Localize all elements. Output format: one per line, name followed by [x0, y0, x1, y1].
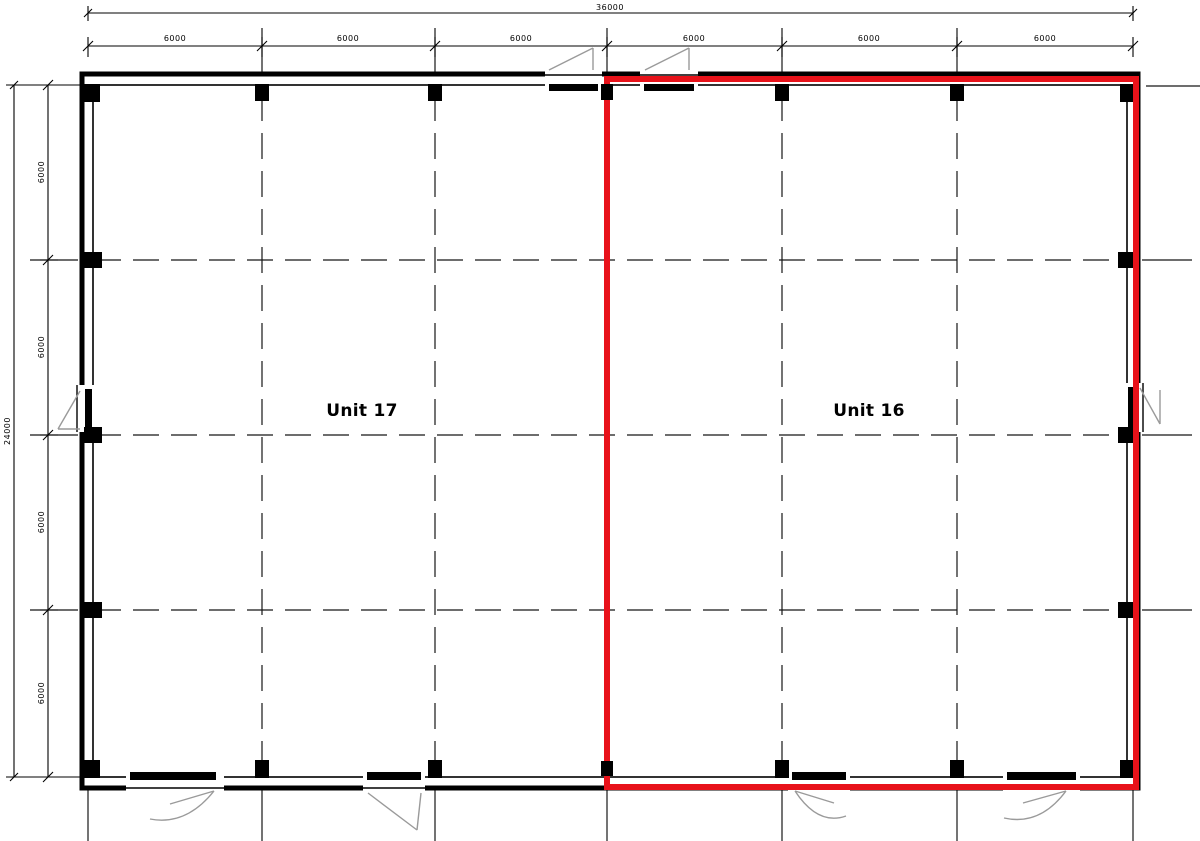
- dim-label-top-bay-1: 6000: [164, 34, 186, 43]
- unit16-highlight-outline: [607, 79, 1136, 787]
- unit-17-label: Unit 17: [326, 401, 398, 421]
- grid-vertical-extensions-top: [262, 28, 957, 72]
- top-dimension-total: 36000: [84, 3, 1137, 21]
- dim-label-top-bay-6: 6000: [1034, 34, 1056, 43]
- door-swing-top-right: [645, 48, 689, 70]
- door-swing-bottom-2: [368, 793, 421, 830]
- dim-label-top-bay-2: 6000: [337, 34, 359, 43]
- unit-16-label: Unit 16: [833, 401, 905, 421]
- dim-label-top-bay-3: 6000: [510, 34, 532, 43]
- grid-lines: [30, 28, 1200, 841]
- door-swing-bottom-4: [1004, 791, 1066, 819]
- dim-label-left-bay-3: 6000: [37, 511, 46, 533]
- dim-label-left-total: 24000: [3, 417, 12, 445]
- dim-label-left-bay-2: 6000: [37, 336, 46, 358]
- grid-vertical-extensions-bottom: [88, 790, 1133, 841]
- door-leaf-top-left: [549, 84, 598, 91]
- door-leaf-top-right: [644, 84, 694, 91]
- top-dimension-ticks: [83, 37, 1138, 57]
- dim-label-left-bay-4: 6000: [37, 682, 46, 704]
- door-leaf-bottom-1: [130, 772, 216, 780]
- floor-plan-page: 36000 6000 6000 6000 6000 6000 6000: [0, 0, 1200, 841]
- door-leaf-bottom-3: [792, 772, 846, 780]
- door-leaf-bottom-4: [1007, 772, 1076, 780]
- dim-label-top-bay-5: 6000: [858, 34, 880, 43]
- door-swing-bottom-1: [150, 791, 214, 820]
- door-leaf-left-wall: [85, 389, 92, 429]
- door-swing-bottom-3: [795, 791, 846, 818]
- door-swing-top-left: [549, 48, 593, 70]
- dim-label-top-total: 36000: [596, 3, 624, 12]
- floor-plan-drawing: 36000 6000 6000 6000 6000 6000 6000: [0, 0, 1200, 841]
- dim-label-left-bay-1: 6000: [37, 161, 46, 183]
- top-dimension-bays: 6000 6000 6000 6000 6000 6000: [83, 34, 1138, 57]
- grid-horizontal-extensions: [30, 86, 1200, 610]
- dim-label-top-bay-4: 6000: [683, 34, 705, 43]
- left-dimension-ticks: [40, 80, 58, 782]
- left-dimension-total: 24000: [3, 81, 80, 781]
- left-dimension-bays: 6000 6000 6000 6000: [37, 80, 58, 782]
- door-leaf-bottom-2: [367, 772, 421, 780]
